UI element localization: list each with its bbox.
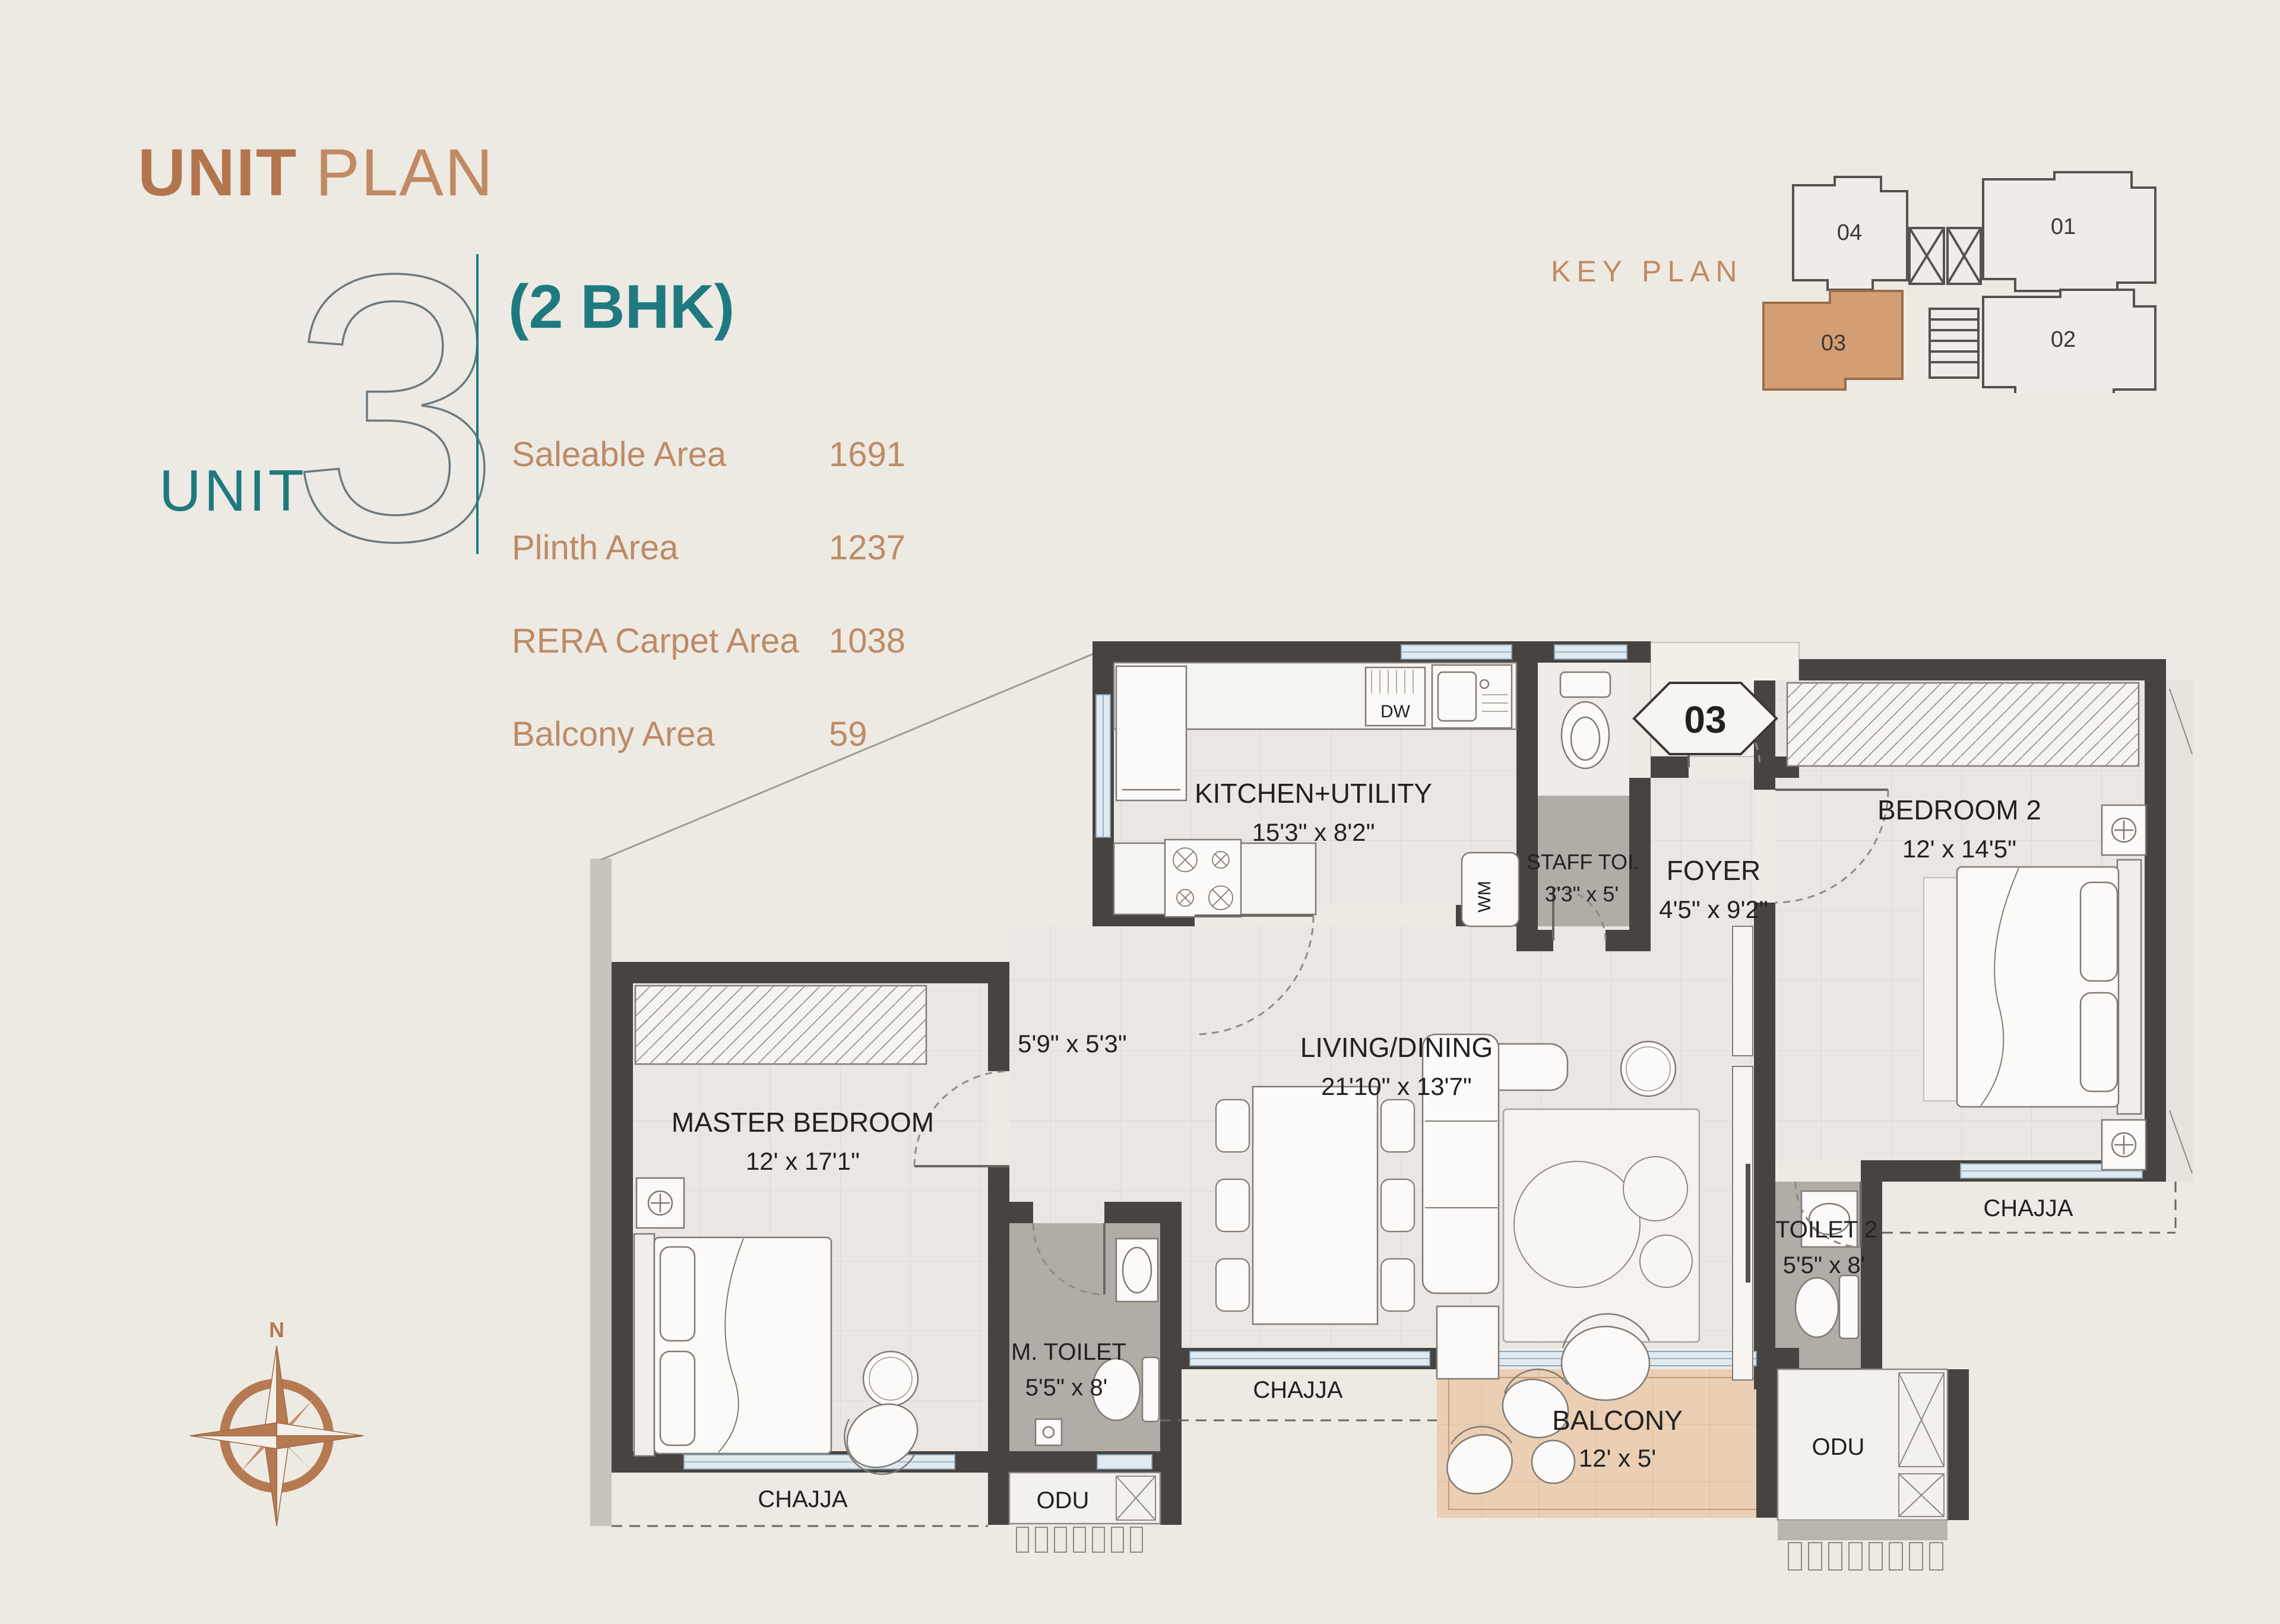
- wc-bowl: [1562, 702, 1609, 768]
- key-plan: 04 01 03 02: [1752, 162, 2209, 393]
- shower: [1035, 1419, 1062, 1445]
- unit-marker-number: 03: [1684, 698, 1726, 741]
- foyer-cabinet: [1733, 926, 1753, 1056]
- chair: [1216, 1100, 1249, 1152]
- wc-tank: [1560, 672, 1610, 697]
- dishwasher-label: DW: [1380, 702, 1411, 721]
- staff-toilet-fixtures: [1560, 672, 1610, 768]
- living-label: LIVING/DINING: [1300, 1032, 1493, 1063]
- area-row: Saleable Area1691: [512, 435, 905, 474]
- unit-number-outline: 3: [279, 233, 505, 577]
- key-plan-unit-03-label: 03: [1821, 331, 1846, 356]
- master-dims: 12' x 17'1": [746, 1147, 860, 1175]
- round-table: [1621, 1041, 1676, 1096]
- sink-basin: [1438, 672, 1476, 721]
- area-value: 1691: [829, 435, 905, 474]
- washing-machine-label: WM: [1475, 881, 1494, 912]
- balcony-table: [1532, 1441, 1575, 1483]
- foyer-dims: 4'5" x 9'2": [1659, 895, 1768, 923]
- toilet2-label: TOILET 2: [1775, 1217, 1877, 1243]
- chajja-label-left: CHAJJA: [758, 1486, 847, 1512]
- side-table: [1437, 1306, 1499, 1379]
- unit-plan-page: { "page": {"background": "#edeae4", "acc…: [0, 0, 2280, 1624]
- area-label: Plinth Area: [512, 528, 829, 568]
- rug-circle: [1623, 1157, 1687, 1221]
- unit-number: 3: [290, 233, 501, 577]
- tv: [1746, 1164, 1750, 1283]
- dining-table: [1253, 1087, 1377, 1324]
- key-plan-unit-01-label: 01: [2051, 214, 2076, 239]
- odu-base: [1778, 1520, 1947, 1540]
- left-ledge: [590, 859, 612, 1526]
- balcony-label: BALCONY: [1552, 1405, 1683, 1436]
- balcony-dims: 12' x 5': [1579, 1444, 1656, 1472]
- page-title: UNITPLAN: [138, 134, 494, 211]
- headboard: [634, 1234, 654, 1456]
- pillow: [2080, 993, 2117, 1091]
- kitchen-label: KITCHEN+UTILITY: [1195, 778, 1432, 809]
- rug-circle: [1514, 1161, 1640, 1287]
- toilet2-dims: 5'5" x 8': [1783, 1252, 1865, 1278]
- chajja-label-right: CHAJJA: [1983, 1195, 2073, 1221]
- floor-plan: 03 KITCH: [582, 618, 2221, 1615]
- rug-circle: [1640, 1235, 1692, 1287]
- kitchen-cabinet: [1116, 666, 1186, 800]
- kitchen-dims: 15'3" x 8'2": [1252, 818, 1375, 846]
- pillow: [2080, 882, 2117, 981]
- armchair: [1562, 1327, 1649, 1400]
- staff-toilet-label: STAFF TOI.: [1527, 850, 1639, 874]
- page-title-light: PLAN: [315, 135, 494, 210]
- chair: [1381, 1259, 1414, 1311]
- wc-bowl: [1795, 1278, 1838, 1337]
- headboard: [2117, 860, 2141, 1114]
- chair: [1216, 1259, 1249, 1311]
- page-title-bold: UNIT: [138, 135, 297, 210]
- master-label: MASTER BEDROOM: [672, 1107, 934, 1138]
- m-toilet-dims: 5'5" x 8': [1025, 1375, 1107, 1401]
- pillow: [660, 1351, 695, 1445]
- bedroom2-dims: 12' x 14'5": [1902, 835, 2016, 863]
- area-label: Saleable Area: [512, 435, 829, 474]
- plot-diagonal-line: [601, 653, 1095, 860]
- passage-dims: 5'9" x 5'3": [1018, 1030, 1127, 1058]
- area-value: 1237: [829, 528, 905, 567]
- north-label: N: [269, 1319, 284, 1342]
- chajja-label-mid: CHAJJA: [1253, 1377, 1342, 1403]
- wc-tank: [1142, 1357, 1159, 1422]
- foyer-label: FOYER: [1667, 855, 1760, 886]
- key-plan-unit-04-label: 04: [1837, 220, 1862, 245]
- chair: [1381, 1179, 1414, 1232]
- wc-tank: [1839, 1275, 1858, 1338]
- m-toilet-label: M. TOILET: [1011, 1339, 1126, 1365]
- staff-toilet-dims: 3'3" x 5': [1545, 882, 1619, 906]
- compass-rose: N: [188, 1319, 366, 1527]
- unit-type: (2 BHK): [508, 272, 734, 343]
- chair: [1216, 1179, 1249, 1232]
- living-dims: 21'10" x 13'7": [1321, 1072, 1472, 1100]
- side-table: [863, 1351, 918, 1406]
- area-row: Plinth Area1237: [512, 528, 905, 568]
- chair: [1381, 1100, 1414, 1152]
- key-plan-title: KEY PLAN: [1551, 254, 1743, 289]
- faucet: [1480, 680, 1489, 688]
- divider-line: [476, 254, 479, 554]
- odu-label-right: ODU: [1812, 1434, 1865, 1460]
- right-ledge: [2166, 680, 2193, 1182]
- pillow: [660, 1247, 695, 1341]
- key-plan-unit-02-label: 02: [2051, 327, 2076, 352]
- odu-label-left: ODU: [1037, 1487, 1090, 1514]
- bedroom2-label: BEDROOM 2: [1877, 794, 2041, 825]
- compass-star: [190, 1346, 363, 1526]
